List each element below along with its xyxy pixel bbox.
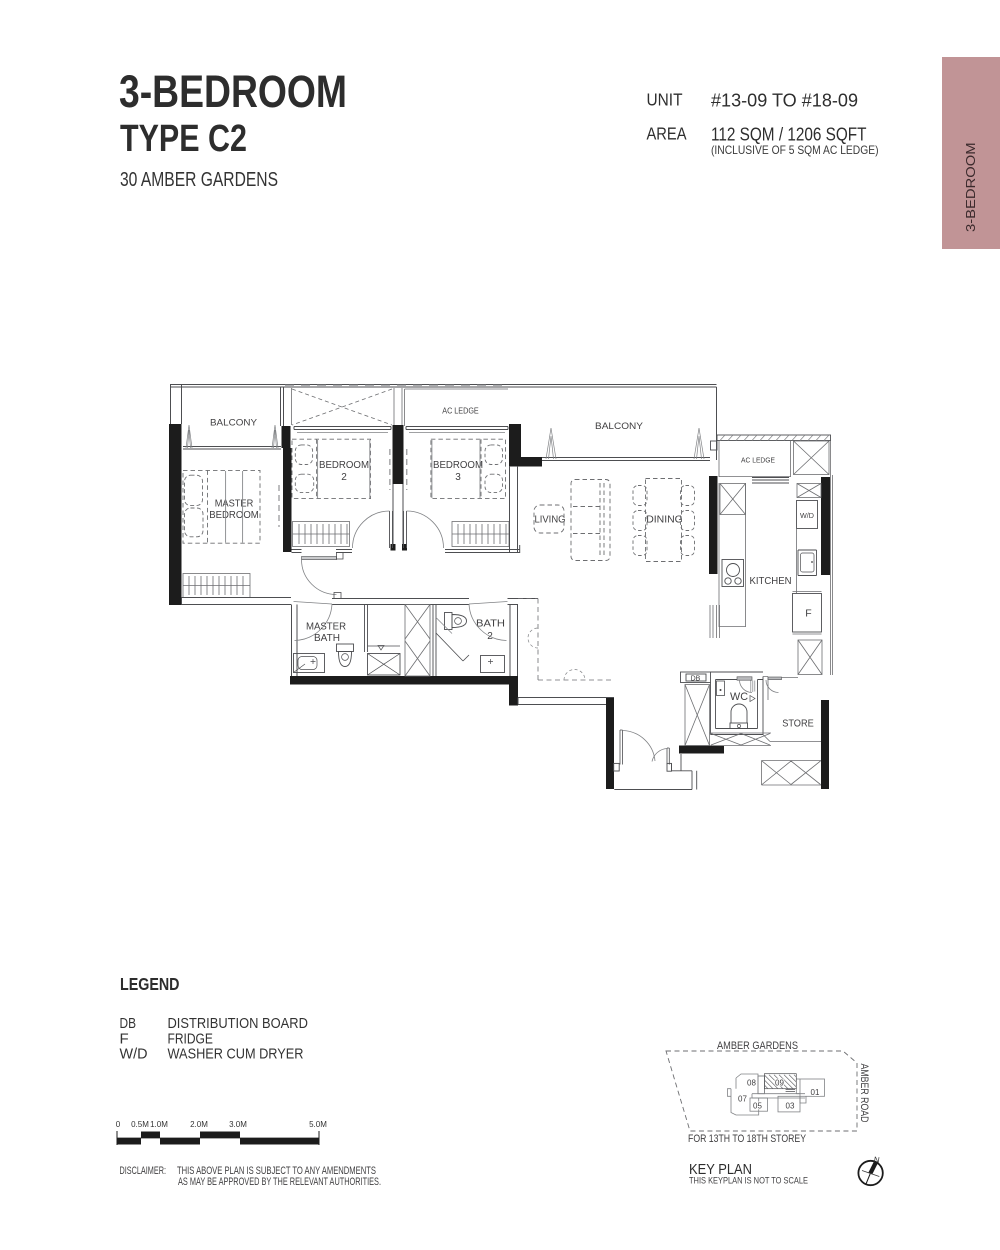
svg-text:STORE: STORE [782,718,814,730]
svg-text:DISCLAIMER:: DISCLAIMER: [120,1165,167,1177]
svg-text:MASTER: MASTER [215,499,254,510]
svg-text:2.0M: 2.0M [190,1120,208,1129]
svg-text:AREA: AREA [647,124,687,144]
svg-text:DB: DB [691,676,701,683]
svg-text:DINING: DINING [646,514,683,526]
svg-text:W/D: W/D [800,511,815,520]
svg-text:BALCONY: BALCONY [210,418,258,429]
svg-text:UNIT: UNIT [647,90,683,110]
svg-text:2: 2 [341,472,347,483]
svg-text:03: 03 [786,1102,795,1111]
svg-text:AC LEDGE: AC LEDGE [741,456,775,465]
svg-text:05: 05 [753,1102,762,1111]
svg-text:08: 08 [747,1079,756,1088]
svg-text:BALCONY: BALCONY [595,421,644,432]
svg-text:1.0M: 1.0M [150,1120,168,1129]
svg-text:112 SQM / 1206 SQFT: 112 SQM / 1206 SQFT [711,124,867,145]
svg-text:F: F [805,608,811,620]
svg-text:AS MAY BE APPROVED BY THE RELE: AS MAY BE APPROVED BY THE RELEVANT AUTHO… [178,1176,381,1188]
svg-text:BATH: BATH [476,619,505,630]
svg-text:AMBER GARDENS: AMBER GARDENS [717,1040,798,1052]
svg-text:WC: WC [730,691,748,703]
svg-text:BEDROOM: BEDROOM [433,460,483,471]
svg-text:KITCHEN: KITCHEN [750,575,792,587]
svg-text:THIS KEYPLAN IS NOT TO SCALE: THIS KEYPLAN IS NOT TO SCALE [689,1176,808,1186]
svg-text:BEDROOM: BEDROOM [209,510,259,521]
svg-text:WASHER CUM DRYER: WASHER CUM DRYER [168,1046,304,1063]
svg-text:W/D: W/D [120,1046,148,1063]
svg-text:(INCLUSIVE OF 5 SQM AC LEDGE): (INCLUSIVE OF 5 SQM AC LEDGE) [711,143,879,157]
svg-text:AMBER ROAD: AMBER ROAD [858,1064,870,1123]
svg-text:0: 0 [116,1120,121,1129]
svg-text:30 AMBER GARDENS: 30 AMBER GARDENS [120,169,278,191]
svg-text:3-BEDROOM: 3-BEDROOM [119,66,347,117]
svg-text:3-BEDROOM: 3-BEDROOM [964,143,978,233]
svg-text:FOR 13TH TO 18TH STOREY: FOR 13TH TO 18TH STOREY [688,1133,807,1145]
svg-text:TYPE C2: TYPE C2 [120,118,247,160]
svg-text:LIVING: LIVING [535,514,566,526]
svg-text:3.0M: 3.0M [229,1120,247,1129]
svg-text:5.0M: 5.0M [309,1120,327,1129]
svg-text:BATH: BATH [314,633,340,644]
svg-text:LEGEND: LEGEND [120,974,180,994]
svg-text:07: 07 [738,1095,747,1104]
svg-text:09: 09 [775,1079,784,1088]
svg-text:BEDROOM: BEDROOM [319,460,369,471]
svg-text:0.5M: 0.5M [131,1120,149,1129]
svg-text:3: 3 [455,472,461,483]
svg-text:01: 01 [811,1088,820,1097]
svg-text:AC LEDGE: AC LEDGE [442,407,479,416]
svg-text:#13-09 TO #18-09: #13-09 TO #18-09 [711,91,858,111]
svg-text:MASTER: MASTER [306,622,346,633]
